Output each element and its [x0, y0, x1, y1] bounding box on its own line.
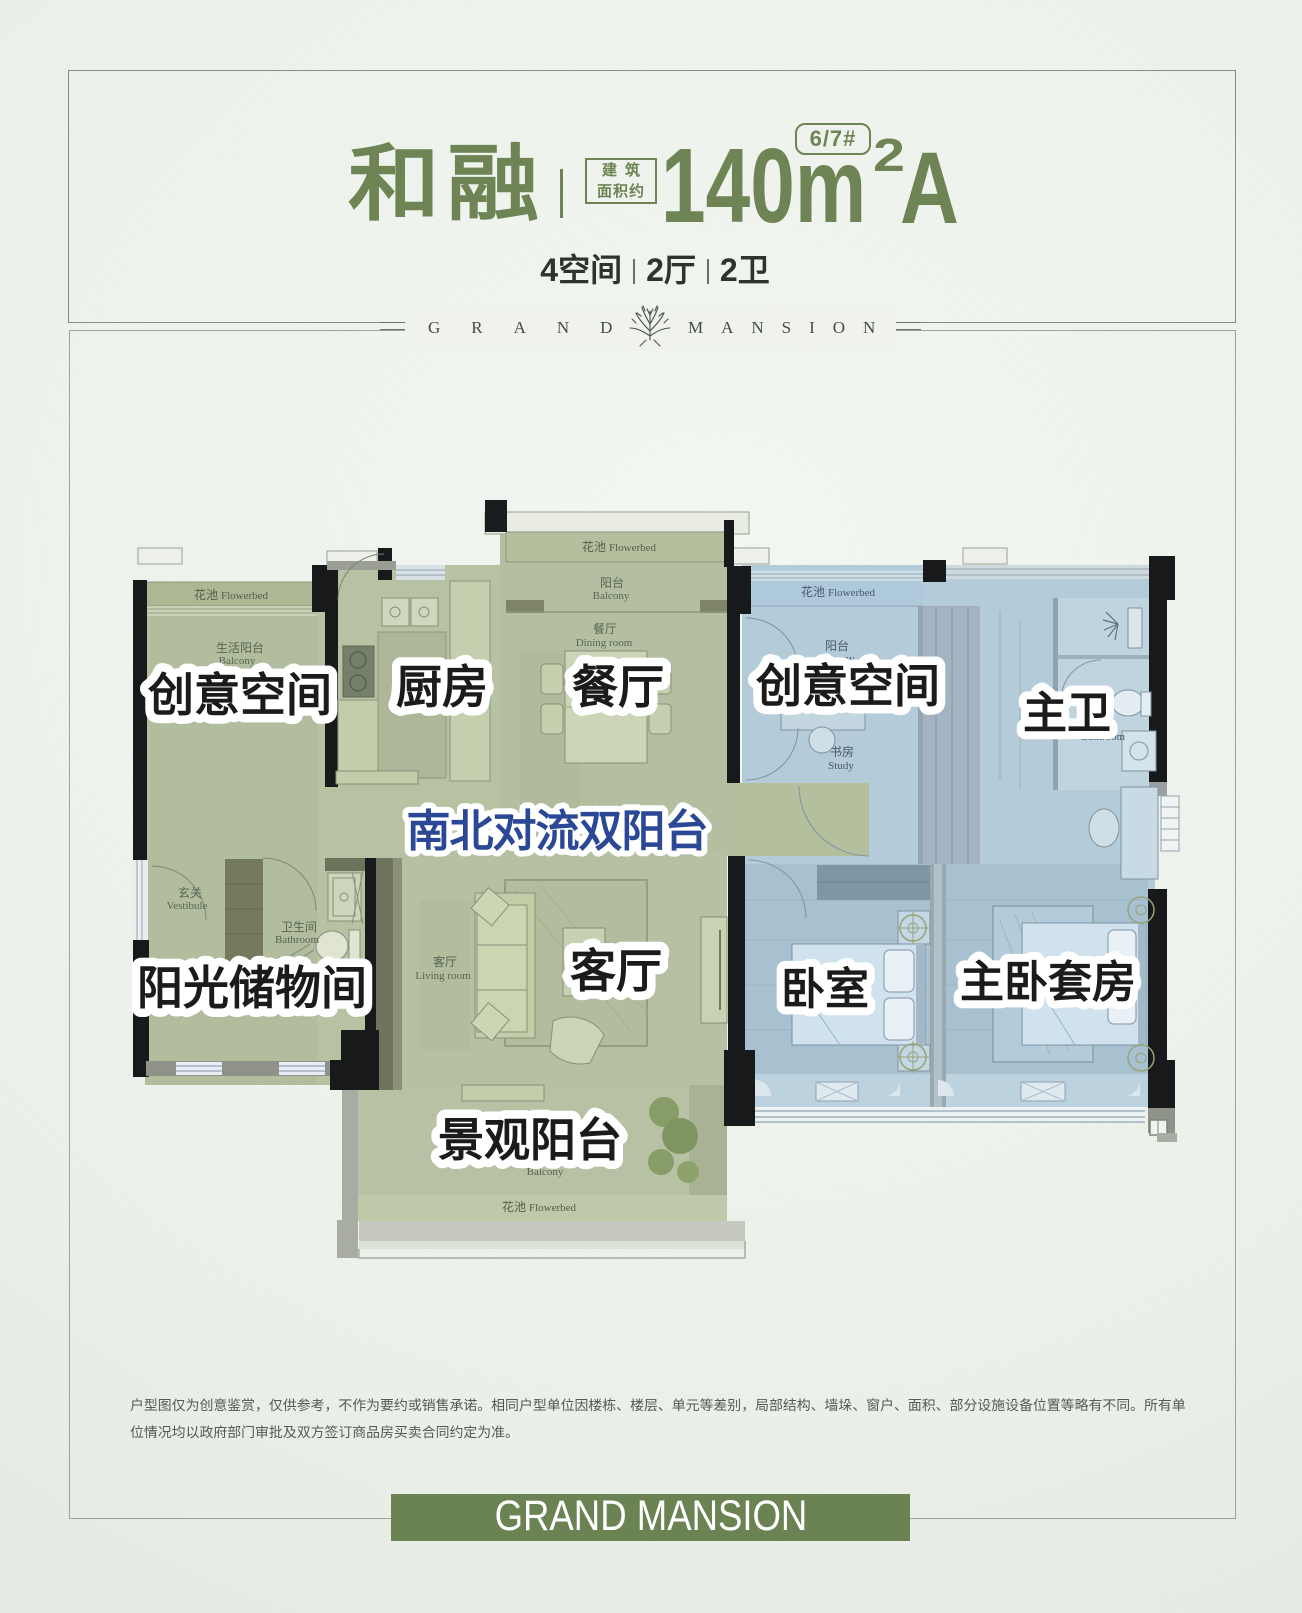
svg-text:书房: 书房 [830, 744, 854, 759]
svg-text:花池 Flowerbed: 花池 Flowerbed [502, 1199, 577, 1214]
svg-text:Bathroom: Bathroom [275, 934, 319, 946]
svg-text:主卫: 主卫 [1023, 689, 1111, 738]
svg-text:餐厅: 餐厅 [593, 621, 617, 636]
svg-text:主卧套房: 主卧套房 [960, 958, 1136, 1007]
svg-text:Study: Study [828, 760, 854, 772]
svg-text:卧室: 卧室 [781, 964, 869, 1014]
svg-text:南北对流双阳台: 南北对流双阳台 [407, 807, 708, 856]
svg-text:Balcony: Balcony [219, 655, 256, 667]
svg-text:Balcony: Balcony [593, 590, 630, 602]
svg-text:客厅: 客厅 [433, 954, 457, 969]
svg-text:Vestibule: Vestibule [167, 900, 208, 912]
svg-text:Dining room: Dining room [576, 637, 633, 649]
svg-text:生活阳台: 生活阳台 [216, 640, 264, 655]
svg-text:创意空间: 创意空间 [148, 669, 332, 721]
svg-text:厨房: 厨房 [396, 661, 488, 713]
svg-text:玄关: 玄关 [178, 885, 202, 900]
svg-text:景观阳台: 景观阳台 [438, 1114, 622, 1166]
svg-text:创意空间: 创意空间 [756, 660, 940, 712]
svg-text:客厅: 客厅 [570, 945, 662, 997]
svg-text:Living room: Living room [415, 970, 471, 982]
svg-text:花池 Flowerbed: 花池 Flowerbed [194, 587, 269, 602]
svg-text:花池 Flowerbed: 花池 Flowerbed [801, 584, 876, 599]
svg-text:阳光储物间: 阳光储物间 [137, 962, 367, 1014]
svg-text:花池 Flowerbed: 花池 Flowerbed [582, 539, 657, 554]
svg-text:阳台: 阳台 [825, 638, 849, 653]
svg-text:餐厅: 餐厅 [572, 661, 664, 713]
svg-text:Balcony: Balcony [527, 1166, 564, 1178]
svg-text:阳台: 阳台 [600, 575, 624, 590]
svg-text:卫生间: 卫生间 [281, 920, 317, 934]
